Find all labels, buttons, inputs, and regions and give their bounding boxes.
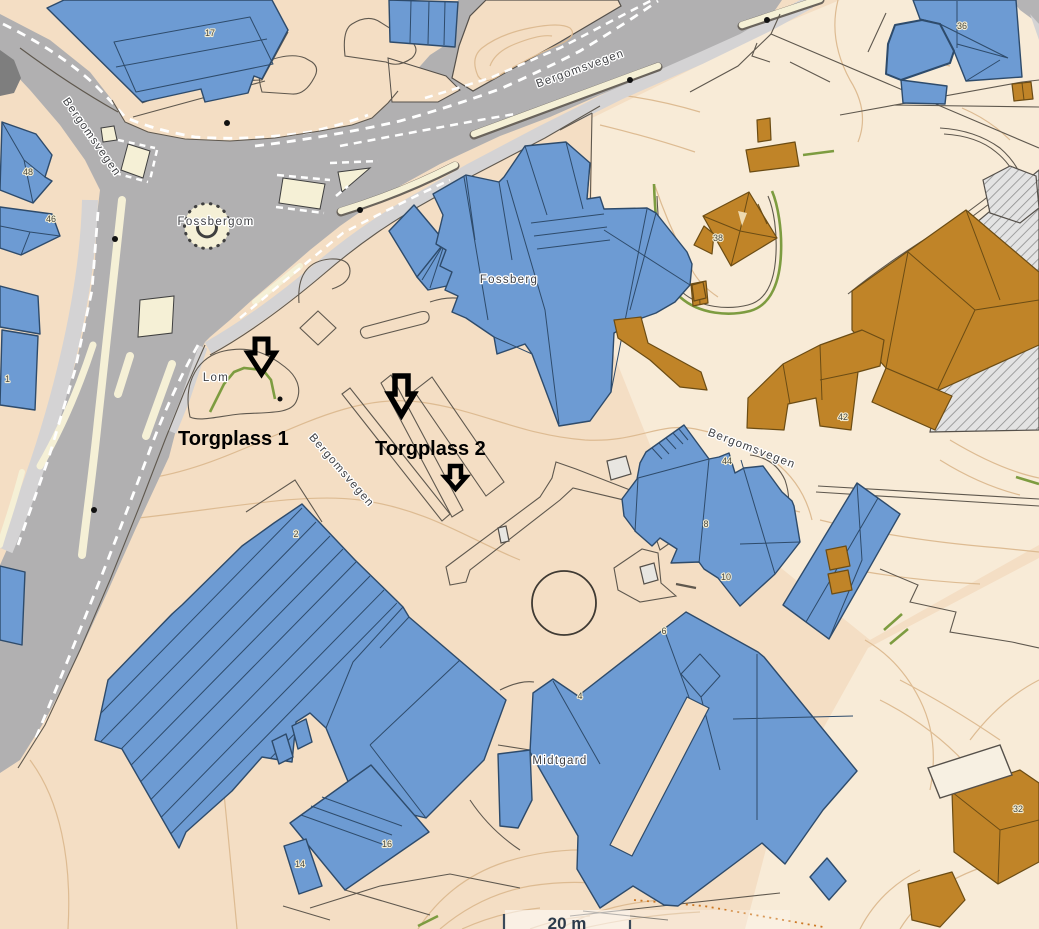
svg-text:Fossberg: Fossberg: [480, 274, 538, 286]
svg-text:17: 17: [205, 28, 215, 38]
svg-text:2: 2: [293, 529, 298, 539]
svg-text:38: 38: [713, 233, 723, 243]
svg-text:Torgplass 1: Torgplass 1: [178, 428, 289, 450]
svg-text:16: 16: [382, 839, 392, 849]
svg-text:20 m: 20 m: [548, 914, 587, 929]
svg-text:14: 14: [295, 859, 305, 869]
svg-text:Torgplass 2: Torgplass 2: [375, 438, 486, 460]
svg-text:4: 4: [577, 691, 582, 701]
svg-text:42: 42: [838, 412, 848, 422]
svg-text:10: 10: [721, 572, 731, 582]
svg-text:36: 36: [957, 21, 967, 31]
svg-text:Fossbergom: Fossbergom: [178, 216, 255, 228]
svg-text:6: 6: [661, 626, 666, 636]
svg-text:1: 1: [5, 374, 10, 384]
svg-text:44: 44: [722, 456, 732, 466]
svg-text:Midtgard: Midtgard: [532, 755, 587, 767]
svg-text:32: 32: [1013, 804, 1023, 814]
svg-text:8: 8: [703, 519, 708, 529]
svg-text:Lom: Lom: [203, 372, 229, 384]
svg-text:48: 48: [23, 167, 33, 177]
svg-text:46: 46: [46, 214, 56, 224]
